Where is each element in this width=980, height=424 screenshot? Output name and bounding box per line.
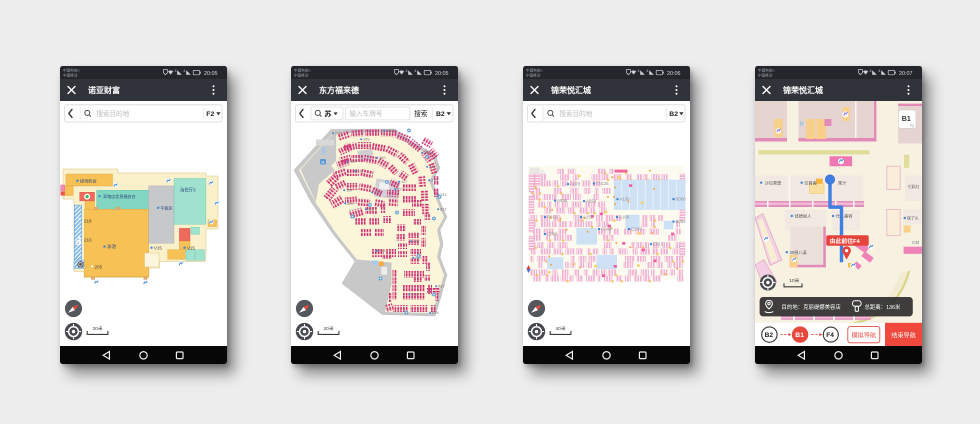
svg-text:中国移动: 中国移动 <box>63 72 78 77</box>
svg-text:果汁: 果汁 <box>838 179 847 186</box>
svg-text:诺亚财富: 诺亚财富 <box>88 85 120 95</box>
svg-text:CM: CM <box>912 240 919 245</box>
svg-text:062: 062 <box>413 238 420 243</box>
svg-text:仕人美容: 仕人美容 <box>836 212 853 219</box>
svg-text:空酋美: 空酋美 <box>805 179 818 186</box>
svg-text:V15: V15 <box>154 245 162 250</box>
svg-text:A098: A098 <box>557 198 568 203</box>
svg-text:3: 3 <box>174 69 176 73</box>
svg-text:116: 116 <box>368 206 374 211</box>
svg-text:钱德丽人: 钱德丽人 <box>795 212 813 219</box>
svg-text:139: 139 <box>357 168 364 173</box>
svg-text:搜索目的地: 搜索目的地 <box>560 108 593 117</box>
svg-text:C098: C098 <box>547 231 558 236</box>
svg-text:10米: 10米 <box>790 277 800 284</box>
svg-text:Q243: Q243 <box>631 226 642 231</box>
svg-text:B1: B1 <box>796 332 805 339</box>
svg-text:由此前往F4: 由此前往F4 <box>830 236 861 244</box>
svg-text:目的地：克丽缇娜美容店: 目的地：克丽缇娜美容店 <box>782 302 842 310</box>
svg-text:164: 164 <box>346 187 353 192</box>
svg-text:4: 4 <box>183 69 185 73</box>
svg-text:V15: V15 <box>187 245 195 250</box>
svg-text:苏: 苏 <box>325 109 332 118</box>
svg-text:B1: B1 <box>902 116 911 123</box>
svg-text:锦荣悦汇城: 锦荣悦汇城 <box>551 85 591 95</box>
svg-text:3: 3 <box>638 69 640 73</box>
svg-text:623: 623 <box>397 186 404 191</box>
svg-text:3: 3 <box>870 69 872 73</box>
svg-text:A136: A136 <box>620 196 631 201</box>
svg-text:海悦厅3: 海悦厅3 <box>180 186 196 193</box>
svg-text:345: 345 <box>429 164 436 169</box>
svg-text:泳池: 泳池 <box>107 243 117 250</box>
svg-text:搜索目的地: 搜索目的地 <box>96 108 129 117</box>
svg-text:162: 162 <box>347 200 354 205</box>
svg-text:中国移动: 中国移动 <box>758 72 773 77</box>
svg-text:中国移动: 中国移动 <box>294 72 309 77</box>
svg-text:搜索: 搜索 <box>414 109 428 118</box>
svg-text:399: 399 <box>379 155 386 160</box>
svg-text:4: 4 <box>879 69 881 73</box>
svg-text:316: 316 <box>424 150 431 155</box>
svg-text:沙拉果愿: 沙拉果愿 <box>765 179 782 186</box>
svg-text:B2: B2 <box>436 111 445 118</box>
svg-text:模拟导航: 模拟导航 <box>852 331 877 339</box>
svg-text:耳笔店信息服务台: 耳笔店信息服务台 <box>103 192 136 198</box>
svg-text:中国电信G: 中国电信G <box>63 67 80 72</box>
svg-text:A078: A078 <box>570 181 581 186</box>
svg-text:037: 037 <box>438 283 445 288</box>
svg-text:20米: 20米 <box>324 324 334 331</box>
svg-text:输入车牌号: 输入车牌号 <box>350 108 383 117</box>
svg-text:中国电信G: 中国电信G <box>758 67 775 72</box>
svg-text:20米: 20米 <box>92 324 102 331</box>
svg-text:[3: [3 <box>800 121 804 126</box>
svg-text:20:05: 20:05 <box>435 70 449 76</box>
svg-text:20:07: 20:07 <box>899 70 913 76</box>
svg-text:F2: F2 <box>206 111 214 118</box>
svg-text:总距离：136米: 总距离：136米 <box>865 302 902 310</box>
svg-text:A169: A169 <box>619 214 630 219</box>
svg-text:028: 028 <box>411 291 418 296</box>
svg-text:606: 606 <box>335 130 342 135</box>
svg-text:B092: B092 <box>676 219 687 224</box>
svg-text:40米: 40米 <box>556 324 566 331</box>
svg-text:338: 338 <box>431 177 438 182</box>
svg-text:1306: 1306 <box>386 128 395 133</box>
svg-text:133: 133 <box>374 189 381 194</box>
svg-text:C048: C048 <box>601 226 612 231</box>
svg-text:中国移动: 中国移动 <box>526 72 541 77</box>
svg-text:117: 117 <box>401 179 407 184</box>
svg-text:A558: A558 <box>586 198 597 203</box>
svg-text:F4: F4 <box>827 332 835 339</box>
svg-text:B2: B2 <box>765 332 774 339</box>
svg-text:B2: B2 <box>669 111 678 118</box>
svg-text:20:05: 20:05 <box>204 70 218 76</box>
svg-text:205: 205 <box>94 264 102 269</box>
svg-text:七彩红: 七彩红 <box>908 183 920 189</box>
svg-text:5g: 5g <box>910 123 914 127</box>
svg-text:4: 4 <box>647 69 649 73</box>
svg-text:20:06: 20:06 <box>667 70 681 76</box>
svg-text:B060: B060 <box>676 196 687 201</box>
svg-text:019: 019 <box>432 310 439 315</box>
svg-text:104: 104 <box>379 248 386 253</box>
svg-text:218: 218 <box>83 218 91 223</box>
svg-text:结束导航: 结束导航 <box>892 331 917 339</box>
svg-text:210: 210 <box>83 237 91 242</box>
svg-text:A016: A016 <box>547 214 558 219</box>
svg-text:中国电信G: 中国电信G <box>526 67 543 72</box>
svg-text:789: 789 <box>349 159 356 164</box>
svg-text:锦荣悦汇城: 锦荣悦汇城 <box>783 85 823 95</box>
svg-text:TA125: TA125 <box>596 181 609 186</box>
svg-text:接待奶台: 接待奶台 <box>80 177 97 184</box>
svg-text:199: 199 <box>363 136 370 141</box>
svg-text:A255: A255 <box>583 214 594 219</box>
svg-text:中国电信G: 中国电信G <box>294 67 311 72</box>
svg-text:3: 3 <box>406 69 408 73</box>
svg-text:保了么: 保了么 <box>907 215 919 220</box>
svg-text:东方福来德: 东方福来德 <box>319 85 359 95</box>
svg-text:H: H <box>322 159 325 164</box>
svg-text:4: 4 <box>415 69 417 73</box>
svg-text:822: 822 <box>440 206 447 211</box>
svg-text:中庭区: 中庭区 <box>160 204 172 210</box>
svg-text:30俱八溪: 30俱八溪 <box>790 248 808 255</box>
svg-text:E015: E015 <box>653 241 664 246</box>
